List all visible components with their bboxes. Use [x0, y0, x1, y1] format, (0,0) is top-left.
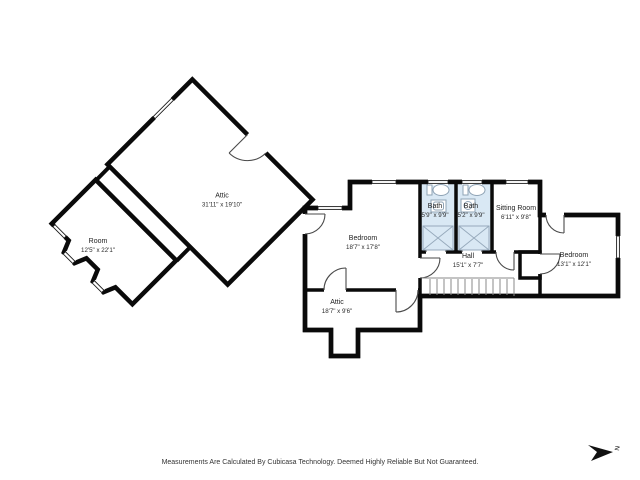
toilet-icon [463, 185, 485, 196]
junction-wall [177, 247, 191, 261]
floor-plan: Attic 31'11" x 19'10" Room 12'5" x 22'1"… [0, 0, 640, 480]
room-name: Attic [330, 299, 344, 306]
disclaimer-text: Measurements Are Calculated By Cubicasa … [162, 459, 479, 466]
room-dims: 15'1" x 7'7" [453, 262, 484, 269]
room-dims: 31'11" x 19'10" [202, 202, 242, 209]
room-dims: 5'2" x 9'9" [457, 212, 484, 219]
room-name: Bath [428, 203, 443, 210]
low-ceiling-area [423, 226, 453, 250]
floor-plan-page: Attic 31'11" x 19'10" Room 12'5" x 22'1"… [0, 0, 640, 480]
window [318, 205, 342, 212]
window [615, 236, 622, 258]
window [372, 179, 396, 186]
low-ceiling-area [459, 226, 489, 250]
room-name: Bedroom [349, 235, 378, 242]
toilet-icon [427, 185, 449, 196]
room-name: Bath [464, 203, 479, 210]
north-label: N [613, 445, 621, 451]
room-name: Hall [462, 253, 475, 260]
room-dims: 18'7" x 9'6" [322, 308, 353, 315]
room-dims: 18'7" x 17'8" [346, 244, 380, 251]
room-name: Bedroom [560, 252, 589, 259]
junction-wall [96, 166, 110, 180]
room-name: Room [89, 238, 108, 245]
room-dims: 12'5" x 22'1" [81, 247, 115, 254]
room-name: Sitting Room [496, 205, 536, 212]
room-name: Attic [215, 193, 229, 200]
room-dims: 5'9" x 9'9" [421, 212, 448, 219]
compass: N [588, 445, 620, 461]
room-dims: 6'11" x 9'8" [501, 214, 531, 221]
room-dims: 13'1" x 12'1" [557, 261, 591, 268]
north-arrow-icon [588, 445, 613, 461]
window [506, 179, 528, 186]
wing-rotated [41, 73, 316, 315]
